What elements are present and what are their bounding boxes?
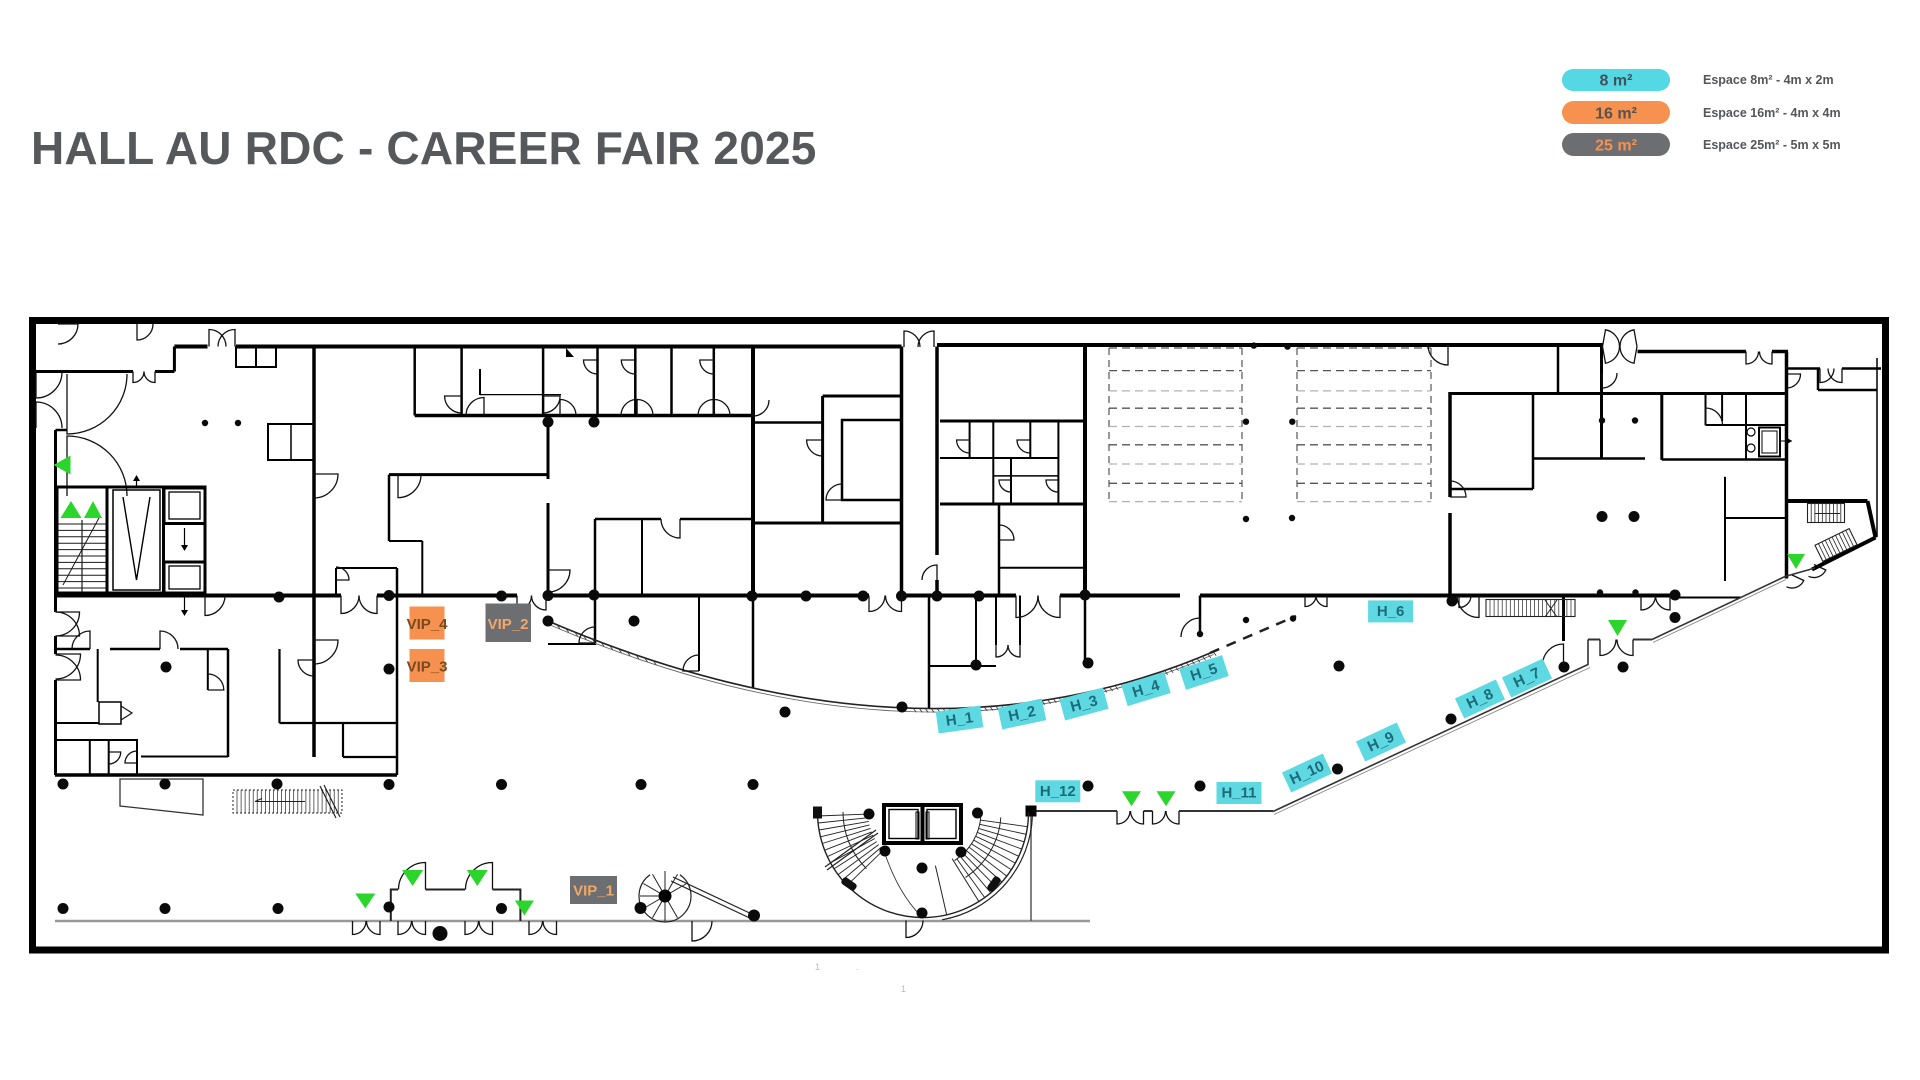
svg-text:VIP_4: VIP_4	[407, 616, 449, 633]
svg-text:25 m²: 25 m²	[1595, 138, 1637, 155]
svg-text:VIP_3: VIP_3	[407, 659, 448, 676]
svg-text:VIP_1: VIP_1	[573, 883, 614, 900]
svg-text:Espace 16m² - 4m x 4m: Espace 16m² - 4m x 4m	[1703, 106, 1841, 120]
svg-text:1: 1	[901, 984, 906, 994]
svg-text:HALL AU RDC - CAREER FAIR 2025: HALL AU RDC - CAREER FAIR 2025	[31, 122, 817, 174]
svg-text:Espace 25m² - 5m x 5m: Espace 25m² - 5m x 5m	[1703, 138, 1841, 152]
svg-text:VIP_2: VIP_2	[488, 616, 529, 633]
svg-text:1: 1	[815, 962, 820, 972]
svg-text:H_11: H_11	[1221, 785, 1256, 802]
svg-text:.: .	[856, 962, 859, 972]
svg-text:H_6: H_6	[1377, 603, 1405, 620]
svg-text:H_12: H_12	[1040, 783, 1076, 800]
svg-text:Espace 8m² - 4m x 2m: Espace 8m² - 4m x 2m	[1703, 73, 1834, 87]
svg-text:16 m²: 16 m²	[1595, 106, 1637, 123]
svg-text:8 m²: 8 m²	[1600, 73, 1633, 90]
